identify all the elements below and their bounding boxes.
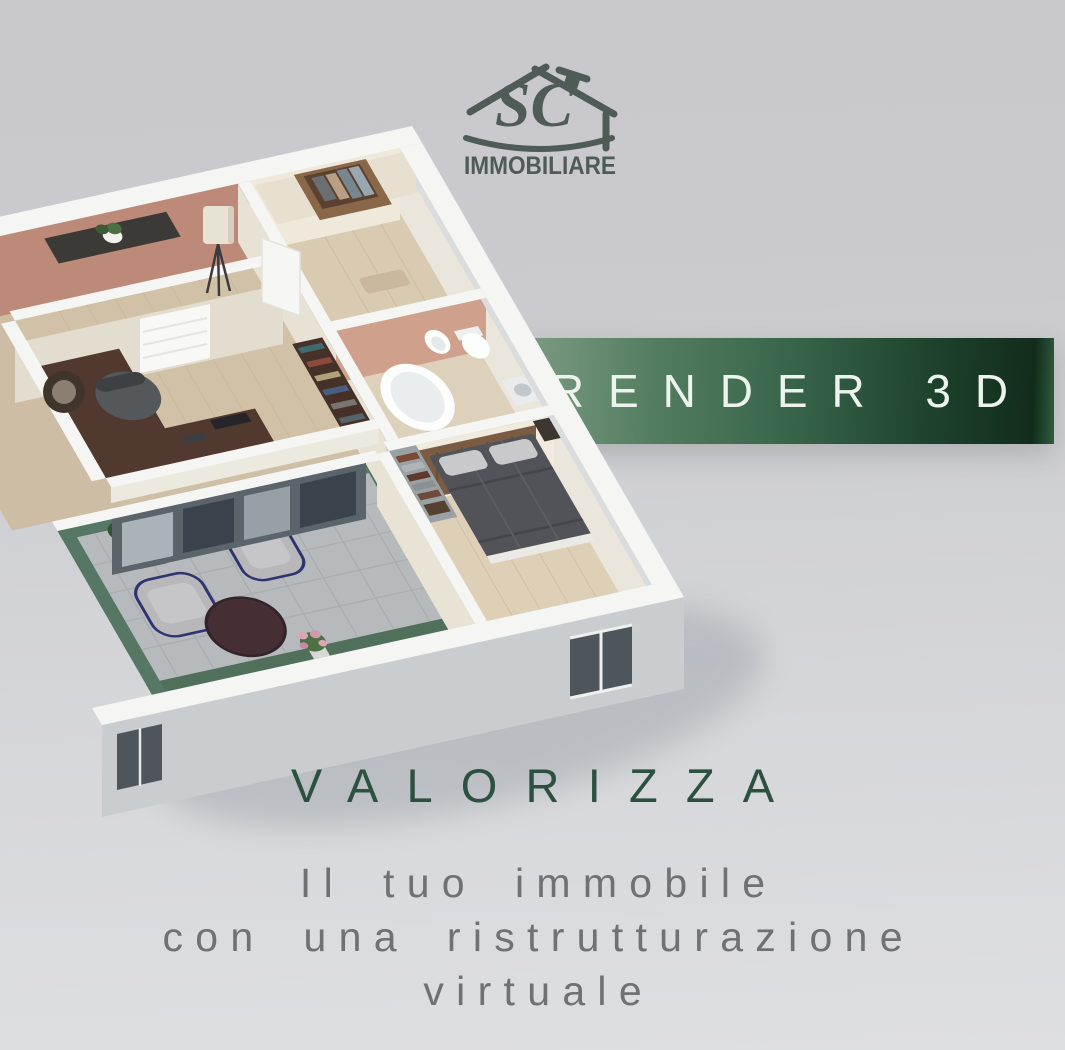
headline-valorizza: VALORIZZA: [0, 758, 1065, 813]
open-door-leaf: [262, 238, 300, 316]
subheadline-line-3: virtuale: [0, 968, 1065, 1015]
company-logo: SC IMMOBILIARE: [438, 52, 648, 182]
wall-clock: [43, 371, 85, 413]
subheadline-line-2: con una ristrutturazione: [0, 914, 1065, 961]
promo-graphic: RENDER 3D: [0, 0, 1065, 1050]
logo-monogram: SC: [495, 69, 575, 140]
subheadline-line-1: Il tuo immobile: [0, 860, 1065, 907]
logo-company-name: IMMOBILIARE: [464, 152, 616, 180]
